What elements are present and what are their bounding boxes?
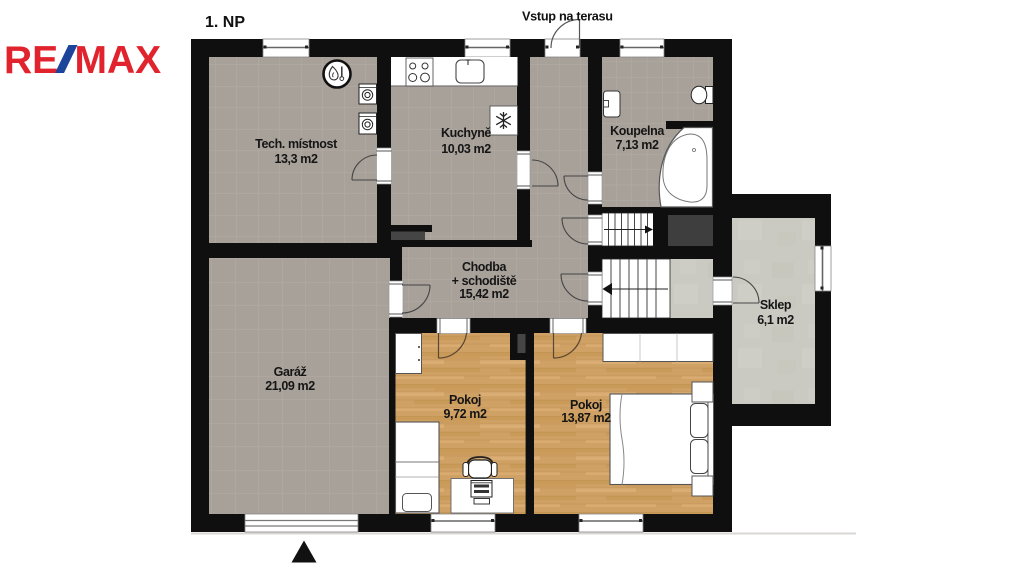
svg-text:13,87 m2: 13,87 m2 xyxy=(561,411,611,425)
svg-text:MAX: MAX xyxy=(75,39,162,82)
svg-text:Pokoj: Pokoj xyxy=(570,398,602,412)
svg-text:Chodba: Chodba xyxy=(462,260,508,274)
svg-text:Pokoj: Pokoj xyxy=(449,393,481,407)
svg-text:10,03 m2: 10,03 m2 xyxy=(441,142,491,156)
svg-text:Sklep: Sklep xyxy=(760,298,792,312)
svg-text:Koupelna: Koupelna xyxy=(610,124,665,138)
svg-text:Vstup na terasu: Vstup na terasu xyxy=(522,10,613,24)
svg-text:Garáž: Garáž xyxy=(274,365,307,379)
svg-text:21,09 m2: 21,09 m2 xyxy=(265,379,315,393)
svg-text:13,3 m2: 13,3 m2 xyxy=(274,152,318,166)
svg-text:RE: RE xyxy=(4,39,58,82)
svg-text:6,1 m2: 6,1 m2 xyxy=(757,313,794,327)
svg-text:Kuchyně: Kuchyně xyxy=(441,126,491,140)
svg-text:9,72 m2: 9,72 m2 xyxy=(443,407,487,421)
svg-text:7,13 m2: 7,13 m2 xyxy=(615,138,659,152)
svg-text:Tech. místnost: Tech. místnost xyxy=(255,137,338,151)
svg-text:15,42 m2: 15,42 m2 xyxy=(459,287,509,301)
svg-text:+ schodiště: + schodiště xyxy=(452,274,517,288)
svg-text:1. NP: 1. NP xyxy=(205,14,245,31)
